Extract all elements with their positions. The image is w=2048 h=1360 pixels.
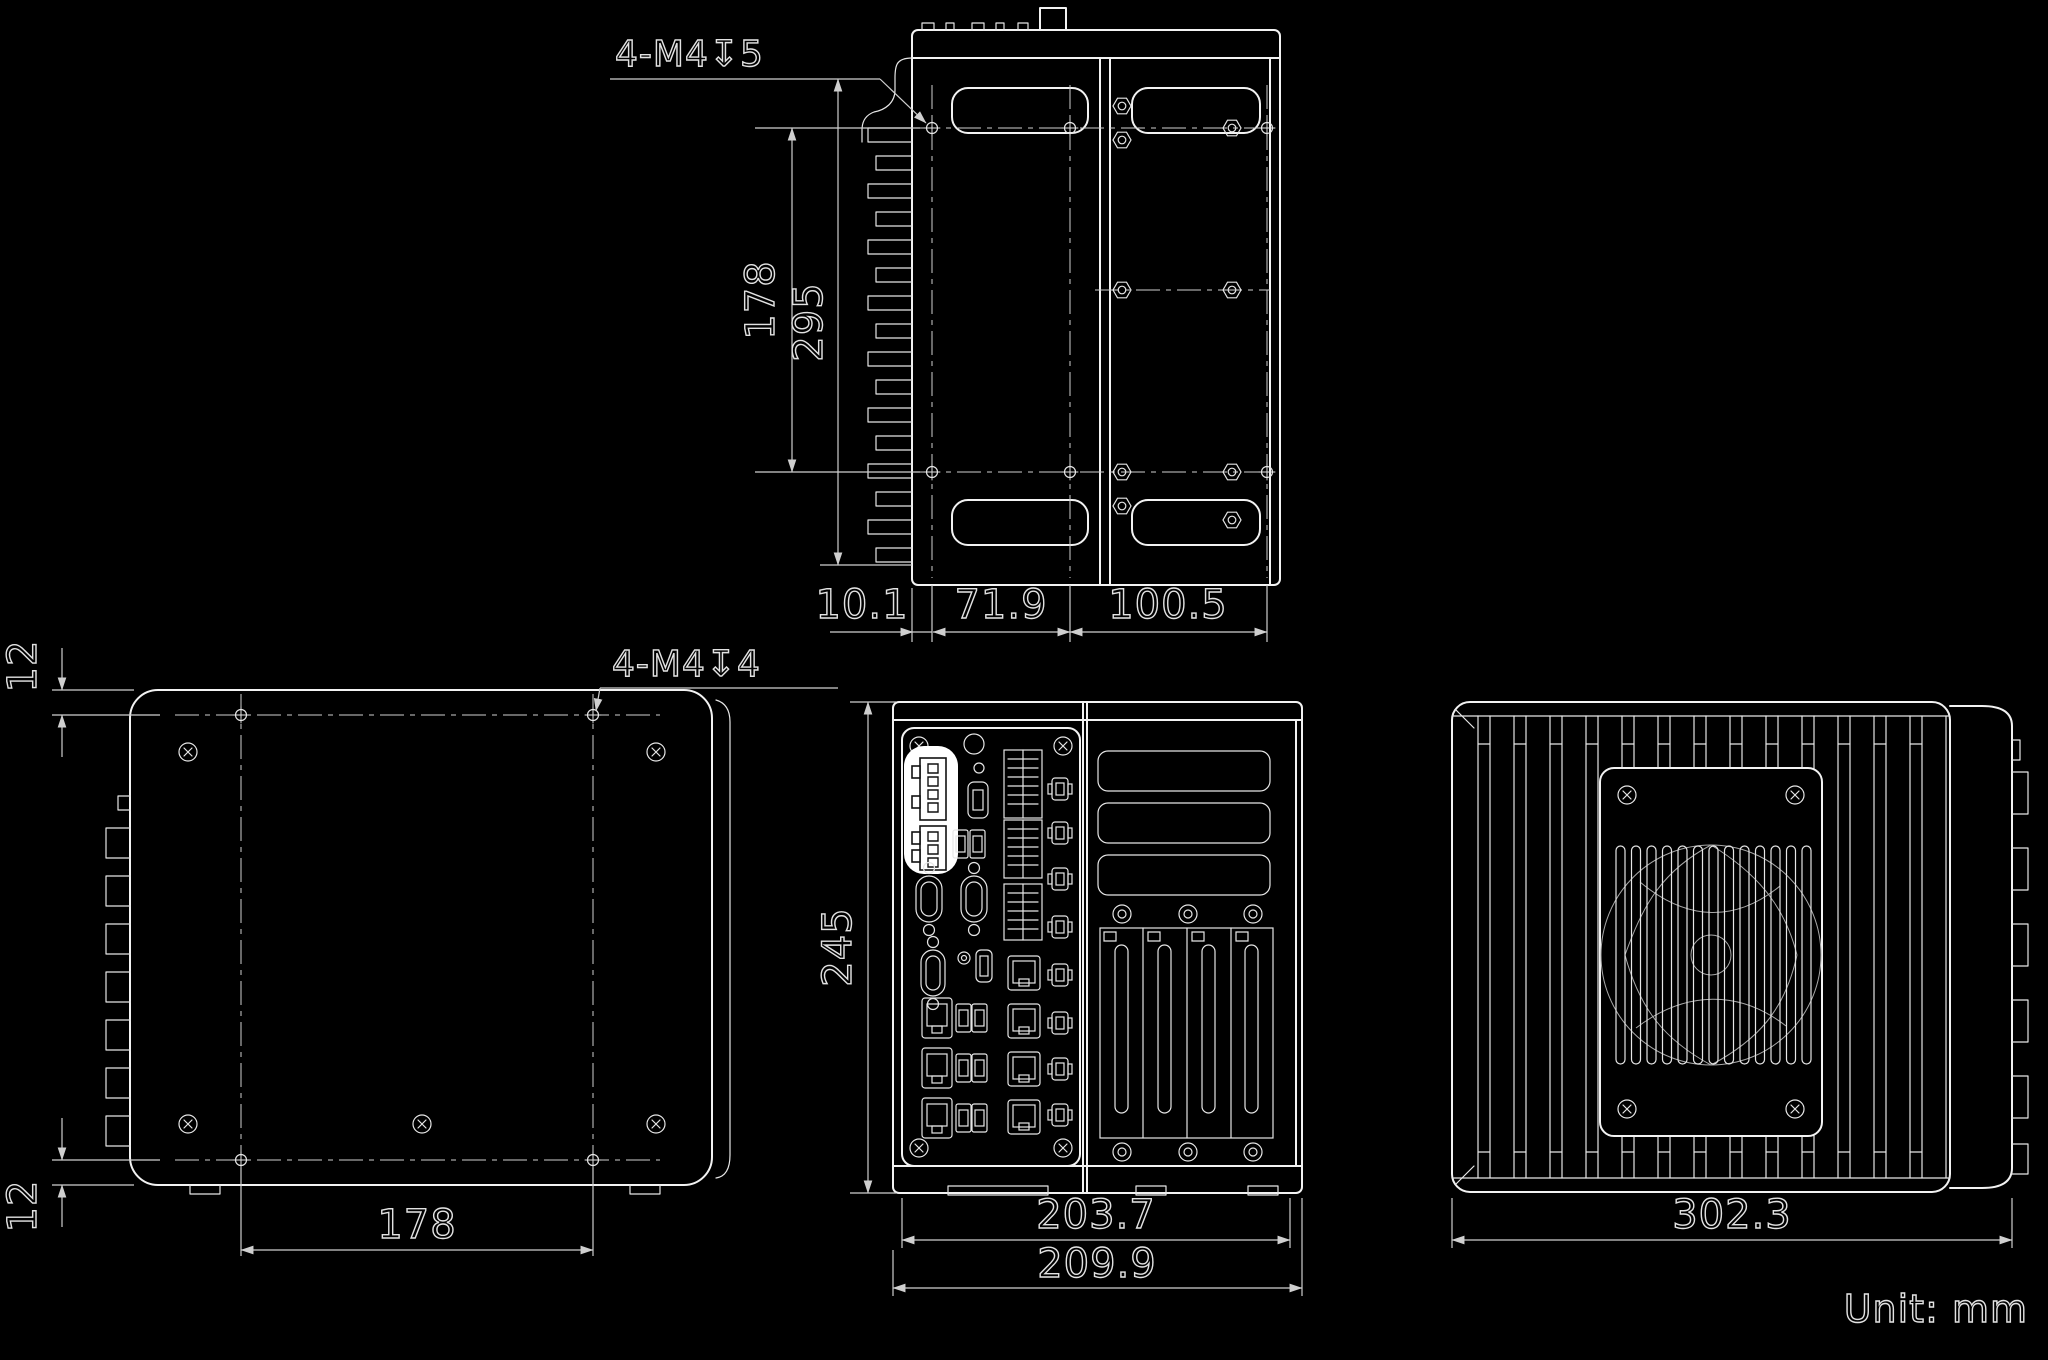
lan-port [1008, 1052, 1040, 1086]
bottom-screws-and-holes [179, 707, 665, 1168]
heatsink-dim-302-3: 302.3 [1672, 1192, 1792, 1238]
side-thread-callout: 4-M4↧5 [615, 34, 764, 75]
technical-drawing-page: 4-M4↧5 178 295 10.1 71.9 100.5 [0, 0, 2048, 1360]
expansion-slot-cover [1098, 855, 1270, 895]
serial-port-db9 [961, 863, 987, 936]
technical-drawing: 4-M4↧5 178 295 10.1 71.9 100.5 [0, 0, 2048, 1360]
bottom-dim-12-top: 12 [0, 640, 46, 693]
power-terminal-blocks [904, 746, 958, 874]
power-button [964, 734, 984, 754]
side-dim-100-5: 100.5 [1108, 582, 1228, 628]
lan-port [1008, 1004, 1040, 1038]
right-edge-bumps [2012, 740, 2028, 1174]
io-connector [1048, 1058, 1072, 1080]
side-dim-295: 295 [786, 282, 832, 361]
front-dim-203-7: 203.7 [1036, 1192, 1156, 1238]
lan-usb-combo [922, 1048, 987, 1088]
bottom-plate [130, 690, 712, 1185]
expansion-slot-cover [1098, 803, 1270, 843]
io-connector [1048, 1104, 1072, 1126]
side-dim-178: 178 [738, 260, 784, 339]
side-dim-10-1: 10.1 [815, 582, 908, 628]
side-slot-bottom-right [1132, 500, 1260, 545]
bracket-slot [1245, 945, 1258, 1113]
bottom-dim-178: 178 [377, 1202, 456, 1248]
lan-port [1008, 1100, 1040, 1134]
io-connector [1048, 916, 1072, 938]
hdmi-port [976, 950, 992, 982]
lan-usb-combo [922, 998, 987, 1038]
lan-port [1008, 956, 1040, 990]
side-heatsink-fins [868, 128, 912, 562]
side-slot-top-right [1132, 88, 1260, 133]
bottom-left-edge-bumps [106, 796, 130, 1146]
terminal-strip [1004, 750, 1042, 940]
unit-note: Unit: mm [1844, 1287, 2028, 1331]
expansion-slot-cover [1098, 751, 1270, 791]
heatsink-view: 302.3 [1452, 702, 2028, 1248]
lan-usb-combo [922, 1098, 987, 1138]
mini-connector [968, 782, 988, 818]
fan-plate [1600, 768, 1822, 1136]
side-view: 4-M4↧5 178 295 10.1 71.9 100.5 [610, 8, 1280, 642]
front-dim-209-9: 209.9 [1037, 1241, 1157, 1287]
side-slot-bottom-left [952, 500, 1088, 545]
usb-port [970, 830, 985, 858]
bracket-slot [1202, 945, 1215, 1113]
side-top-tab [1040, 8, 1066, 30]
side-slot-top-left [952, 88, 1088, 133]
expansion-section [1098, 751, 1273, 1161]
io-connector [1048, 868, 1072, 890]
bracket-slot [1158, 945, 1171, 1113]
bottom-view: 4-M4↧4 12 12 178 [0, 640, 838, 1256]
front-dim-245: 245 [815, 907, 861, 986]
power-led [974, 763, 984, 773]
io-connector [1048, 778, 1072, 800]
front-view: 245 203.7 209.9 [815, 702, 1302, 1296]
bracket-slot [1115, 945, 1128, 1113]
side-view-body [912, 30, 1280, 585]
bottom-dim-12-bottom: 12 [0, 1180, 46, 1233]
side-dim-71-9: 71.9 [954, 582, 1047, 628]
bottom-thread-callout: 4-M4↧4 [612, 644, 761, 685]
io-connector [1048, 964, 1072, 986]
side-panel [1950, 706, 2012, 1188]
audio-jack [958, 952, 970, 964]
io-connector [1048, 1012, 1072, 1034]
io-connector [1048, 822, 1072, 844]
